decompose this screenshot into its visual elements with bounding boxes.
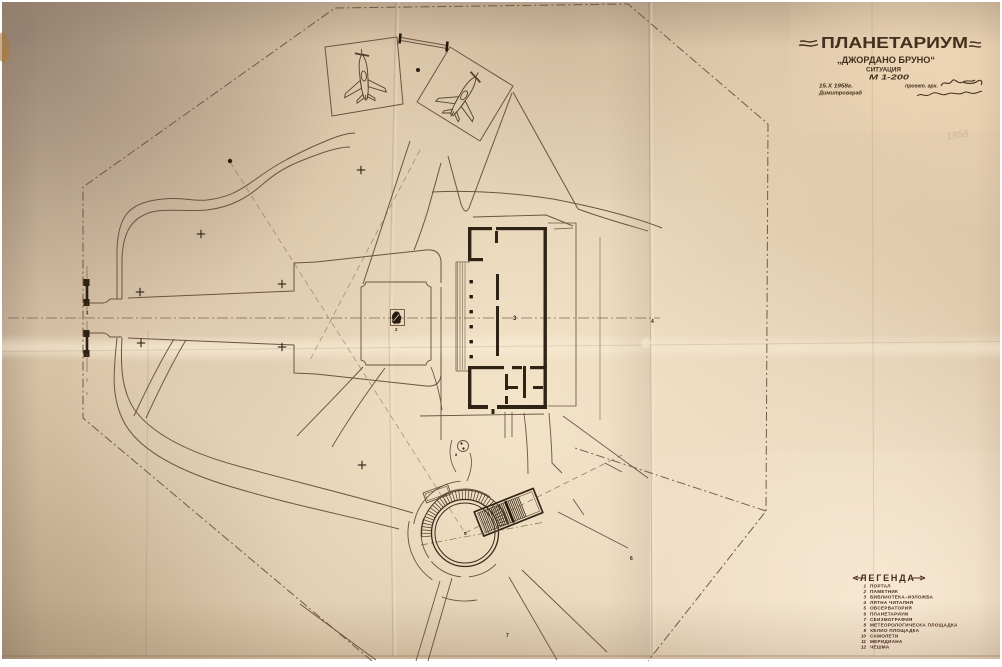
svg-text:7: 7 — [863, 617, 866, 622]
svg-text:Димитровград: Димитровград — [818, 91, 863, 97]
svg-text:ЛЯТНА ЧИТАЛНЯ: ЛЯТНА ЧИТАЛНЯ — [870, 600, 913, 605]
svg-text:11: 11 — [861, 639, 866, 644]
svg-text:6: 6 — [863, 611, 866, 616]
svg-text:ХЕЛИО ПЛОЩАДКА: ХЕЛИО ПЛОЩАДКА — [870, 628, 920, 633]
svg-text:5: 5 — [863, 606, 866, 611]
svg-text:ПЛАНЕТАРИУМ: ПЛАНЕТАРИУМ — [870, 611, 908, 616]
svg-text:4: 4 — [862, 600, 866, 605]
svg-text:ЛЕГЕНДА: ЛЕГЕНДА — [860, 573, 915, 583]
svg-text:ЧЕШМА: ЧЕШМА — [870, 645, 890, 650]
svg-text:ПОРТАЛ: ПОРТАЛ — [870, 584, 891, 589]
svg-text:ПАМЕТНИК: ПАМЕТНИК — [870, 589, 898, 594]
svg-text:БИБЛИОТЕКА–ИЗЛОЖБА: БИБЛИОТЕКА–ИЗЛОЖБА — [870, 595, 934, 600]
svg-text:6: 6 — [630, 556, 633, 562]
svg-text:12: 12 — [861, 645, 867, 650]
svg-text:3: 3 — [863, 595, 866, 600]
svg-text:8: 8 — [863, 622, 866, 627]
svg-text:2: 2 — [862, 589, 866, 594]
svg-text:ПЛАНЕТАРИУМ: ПЛАНЕТАРИУМ — [821, 35, 968, 52]
svg-text:„ДЖОРДАНО БРУНО“: „ДЖОРДАНО БРУНО“ — [837, 55, 935, 65]
svg-text:1: 1 — [863, 584, 866, 589]
svg-text:МЕРИДИАНА: МЕРИДИАНА — [870, 639, 903, 644]
svg-text:проект. арх.: проект. арх. — [905, 84, 938, 90]
svg-text:МЕТЕОРОЛОГИЧЕСКА ПЛОЩАДКА: МЕТЕОРОЛОГИЧЕСКА ПЛОЩАДКА — [870, 622, 958, 627]
svg-text:САМОЛЕТИ: САМОЛЕТИ — [870, 633, 899, 638]
svg-text:4: 4 — [651, 319, 654, 325]
svg-text:М 1-200: М 1-200 — [869, 73, 909, 82]
svg-text:СЕИЗМОГРАФИЯ: СЕИЗМОГРАФИЯ — [870, 617, 913, 622]
svg-text:9: 9 — [863, 628, 866, 633]
svg-text:7: 7 — [506, 633, 509, 639]
svg-text:ОБСЕРВАТОРИЯ: ОБСЕРВАТОРИЯ — [870, 606, 912, 611]
svg-text:10: 10 — [861, 633, 867, 638]
svg-text:15.Х 1958г.: 15.Х 1958г. — [819, 84, 854, 90]
